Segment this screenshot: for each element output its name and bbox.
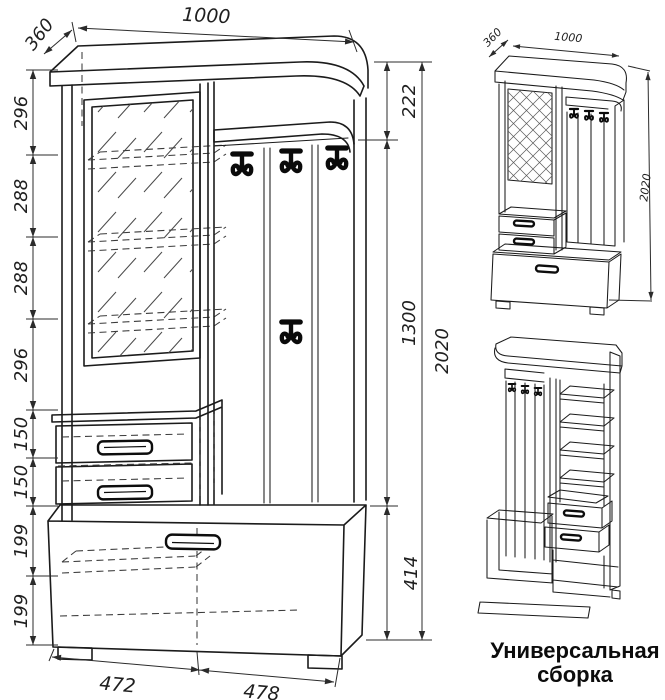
iso2-divider <box>550 378 556 562</box>
front-elevation-view <box>48 36 368 669</box>
caption-line-1: Универсальная <box>490 638 659 663</box>
coat-hook-icon <box>282 322 300 342</box>
dim-label-bottom-left: 472 <box>99 672 137 697</box>
coat-hook-icon <box>570 109 578 118</box>
coat-hook-icon <box>328 148 346 168</box>
right-side-panel <box>354 98 366 502</box>
drawer-handle <box>98 441 152 455</box>
iso-dim-label-height: 2020 <box>637 173 653 202</box>
right-dim-arrows <box>384 62 425 640</box>
iso-view-universal-assembly <box>478 337 622 618</box>
front-view-dimensions: 296 288 288 296 150 150 199 199 1000 360… <box>11 4 453 700</box>
coat-hook-icon <box>585 111 593 120</box>
iso-left-post <box>499 81 505 214</box>
iso2-drawer-handle <box>561 534 581 540</box>
dim-label-height-seg4: 296 <box>11 348 32 382</box>
iso-dim-label-width: 1000 <box>554 30 583 45</box>
dim-label-height-seg1: 296 <box>11 96 32 130</box>
iso2-front-board <box>478 602 590 618</box>
iso2-shelf-column <box>560 380 614 506</box>
dim-label-height-seg6: 150 <box>11 465 32 499</box>
iso2-hat-strip <box>505 369 544 382</box>
dim-label-bottom-right: 478 <box>243 680 281 700</box>
dim-label-width: 1000 <box>182 4 231 29</box>
iso2-drawer-handle <box>564 510 584 516</box>
center-divider <box>200 82 214 505</box>
iso2-drawers <box>545 490 612 552</box>
dim-label-height-seg2: 288 <box>11 179 32 213</box>
bench-door-handle <box>166 535 220 550</box>
iso2-canopy <box>495 337 622 373</box>
coat-hook-icon <box>509 384 516 391</box>
dim-label-height-seg3: 288 <box>11 261 32 295</box>
dim-label-total-height: 2020 <box>432 328 453 374</box>
left-side-panel <box>62 85 72 521</box>
dim-label-height-seg8: 199 <box>11 594 32 628</box>
iso-drawer-handle <box>514 238 534 244</box>
furniture-technical-drawing: 296 288 288 296 150 150 199 199 1000 360… <box>0 0 665 700</box>
iso-divider <box>556 86 562 250</box>
dim-label-height-seg5: 150 <box>11 417 32 451</box>
bottom-dim-arrows <box>52 655 334 684</box>
iso-drawer-handle <box>514 220 534 226</box>
dim-label-panel-height: 1300 <box>399 300 420 346</box>
mirror-glass <box>92 100 193 358</box>
bench-feet <box>58 647 342 669</box>
iso-hook-panel <box>567 100 624 246</box>
iso-bench <box>491 244 621 315</box>
dim-label-height-seg7: 199 <box>11 524 32 558</box>
dim-label-top-section: 222 <box>399 84 420 118</box>
canopy-board <box>50 36 368 96</box>
coat-hook-icon <box>282 151 300 171</box>
iso2-bench <box>487 510 618 597</box>
dim-label-bench-height: 414 <box>401 556 422 590</box>
right-dim-lines <box>358 62 432 640</box>
iso2-hook-panel-slats <box>506 381 544 560</box>
iso-mirror-glass <box>508 89 552 184</box>
iso-view-assembled: 360 1000 2020 <box>481 26 654 315</box>
bench-cabinet <box>48 505 366 656</box>
coat-hook-icon <box>233 154 251 174</box>
dim-label-depth: 360 <box>21 15 59 55</box>
coat-hook-icon <box>535 388 542 395</box>
caption-line-2: сборка <box>537 662 613 687</box>
drawer-handle <box>98 486 152 500</box>
iso-bench-handle <box>536 265 558 273</box>
